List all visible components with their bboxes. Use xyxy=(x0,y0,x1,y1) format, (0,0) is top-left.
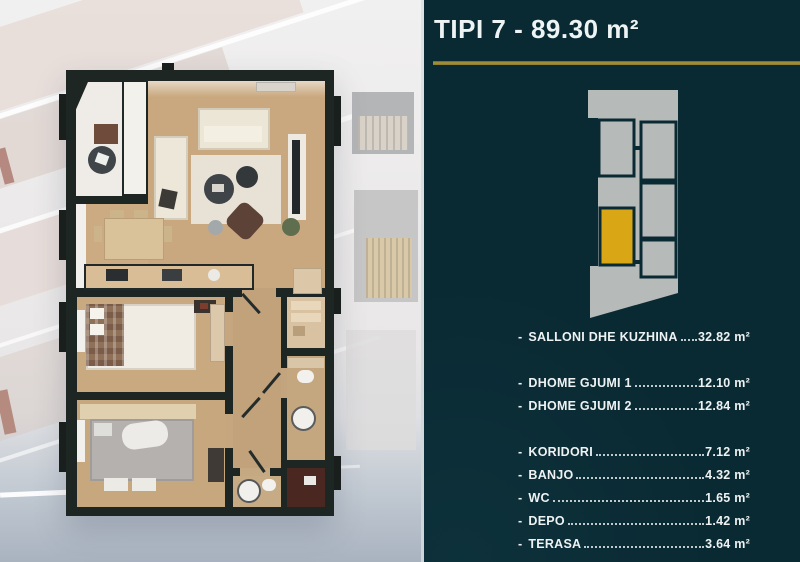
info-panel: TIPI 7 - 89.30 m² - SALLONI DHE KUZHINA … xyxy=(424,0,800,562)
sofa-seat xyxy=(204,126,262,142)
nightstand-decor xyxy=(200,303,208,309)
dining-chair xyxy=(134,210,148,218)
room-row: - KORIDORI 7.12 m² xyxy=(518,445,750,459)
window-frame xyxy=(59,422,66,472)
room-label: DEPO xyxy=(528,514,564,528)
unit-outline xyxy=(641,122,676,180)
side-stool xyxy=(208,220,223,235)
kitchen-sink xyxy=(208,269,220,281)
room-label: KORIDORI xyxy=(528,445,593,459)
dot-leader xyxy=(576,477,704,479)
window-frame xyxy=(59,94,66,140)
bench xyxy=(104,478,128,491)
room-area: 1.42 m² xyxy=(705,514,750,528)
dash: - xyxy=(518,514,522,528)
toilet xyxy=(297,370,314,383)
facade-window-detail xyxy=(358,116,408,150)
sink xyxy=(291,406,316,431)
room-row: - DHOME GJUMI 2 12.84 m² xyxy=(518,399,750,413)
closet xyxy=(293,268,322,294)
dresser xyxy=(208,448,224,482)
room-area: 32.82 m² xyxy=(698,330,750,344)
dash: - xyxy=(518,376,522,390)
room-row: - TERASA 3.64 m² xyxy=(518,537,750,551)
dining-chair xyxy=(110,210,124,218)
storage-box xyxy=(293,326,305,336)
room-label: BANJO xyxy=(528,468,573,482)
table-decor xyxy=(212,184,224,192)
unit-outline xyxy=(599,120,634,176)
room-area: 1.65 m² xyxy=(705,491,750,505)
radiator xyxy=(256,82,296,92)
door-opening xyxy=(225,312,233,346)
shelf xyxy=(291,301,321,310)
cooktop xyxy=(106,269,128,281)
plant xyxy=(282,218,300,236)
dining-table xyxy=(104,218,164,260)
room-row: - WC 1.65 m² xyxy=(518,491,750,505)
room-area: 7.12 m² xyxy=(705,445,750,459)
dash: - xyxy=(518,537,522,551)
headboard-panel xyxy=(80,404,196,419)
unit-connector xyxy=(633,146,642,150)
tv xyxy=(292,140,300,214)
dash: - xyxy=(518,399,522,413)
room-row: - DHOME GJUMI 1 12.10 m² xyxy=(518,376,750,390)
dot-leader xyxy=(584,546,704,548)
dining-chair xyxy=(94,226,102,242)
pillow xyxy=(90,324,104,335)
dot-leader xyxy=(568,523,704,525)
page-title: TIPI 7 - 89.30 m² xyxy=(434,14,639,45)
room-row: - SALLONI DHE KUZHINA 32.82 m² xyxy=(518,330,750,344)
window-frame xyxy=(334,96,341,146)
room-area: 4.32 m² xyxy=(705,468,750,482)
window-frame xyxy=(59,302,66,352)
terrace-closet xyxy=(122,82,146,194)
coffee-table xyxy=(236,166,258,188)
shower-fixture xyxy=(304,476,316,485)
bench xyxy=(132,478,156,491)
room-shower-floor xyxy=(287,468,325,507)
title-underline xyxy=(433,61,800,65)
room-label: DHOME GJUMI 2 xyxy=(528,399,631,413)
dot-leader xyxy=(596,454,704,456)
floorplan-image xyxy=(66,70,334,516)
unit-highlighted xyxy=(600,208,634,265)
facade-window xyxy=(346,330,416,450)
facade-window-detail xyxy=(366,238,412,298)
sink xyxy=(237,479,261,503)
room-label: WC xyxy=(528,491,549,505)
room-label: SALLONI DHE KUZHINA xyxy=(528,330,677,344)
dash: - xyxy=(518,491,522,505)
dot-leader xyxy=(635,408,697,410)
dash: - xyxy=(518,330,522,344)
pillow xyxy=(94,423,112,436)
window-frame xyxy=(334,288,341,314)
room-area: 12.10 m² xyxy=(698,376,750,390)
kitchen-appliance xyxy=(162,269,182,281)
room-area: 12.84 m² xyxy=(698,399,750,413)
door-opening xyxy=(281,368,287,398)
building-position-diagram xyxy=(586,88,680,320)
dot-leader xyxy=(553,500,704,502)
toilet xyxy=(262,479,276,491)
floorplan-photo xyxy=(0,0,424,562)
door-opening xyxy=(240,468,270,476)
window-bay xyxy=(77,420,85,462)
dot-leader xyxy=(681,339,697,341)
room-row: - BANJO 4.32 m² xyxy=(518,468,750,482)
room-area: 3.64 m² xyxy=(705,537,750,551)
shelf xyxy=(291,313,321,322)
dining-chair xyxy=(164,226,172,242)
room-row: - DEPO 1.42 m² xyxy=(518,514,750,528)
dot-leader xyxy=(635,385,697,387)
wall-highlight xyxy=(148,81,325,97)
window-frame xyxy=(162,63,174,70)
wardrobe xyxy=(210,304,225,362)
dash: - xyxy=(518,468,522,482)
desk xyxy=(94,124,118,144)
page: TIPI 7 - 89.30 m² - SALLONI DHE KUZHINA … xyxy=(0,0,800,562)
door-opening xyxy=(225,414,233,448)
room-label: TERASA xyxy=(528,537,581,551)
window-frame xyxy=(59,210,66,260)
vanity xyxy=(288,358,324,368)
window-frame xyxy=(334,456,341,490)
room-list: - SALLONI DHE KUZHINA 32.82 m² - DHOME G… xyxy=(518,330,750,560)
pillow xyxy=(90,308,104,319)
dash: - xyxy=(518,445,522,459)
window-bay xyxy=(77,310,85,352)
unit-outline xyxy=(641,183,676,238)
room-label: DHOME GJUMI 1 xyxy=(528,376,631,390)
unit-outline xyxy=(641,240,676,277)
